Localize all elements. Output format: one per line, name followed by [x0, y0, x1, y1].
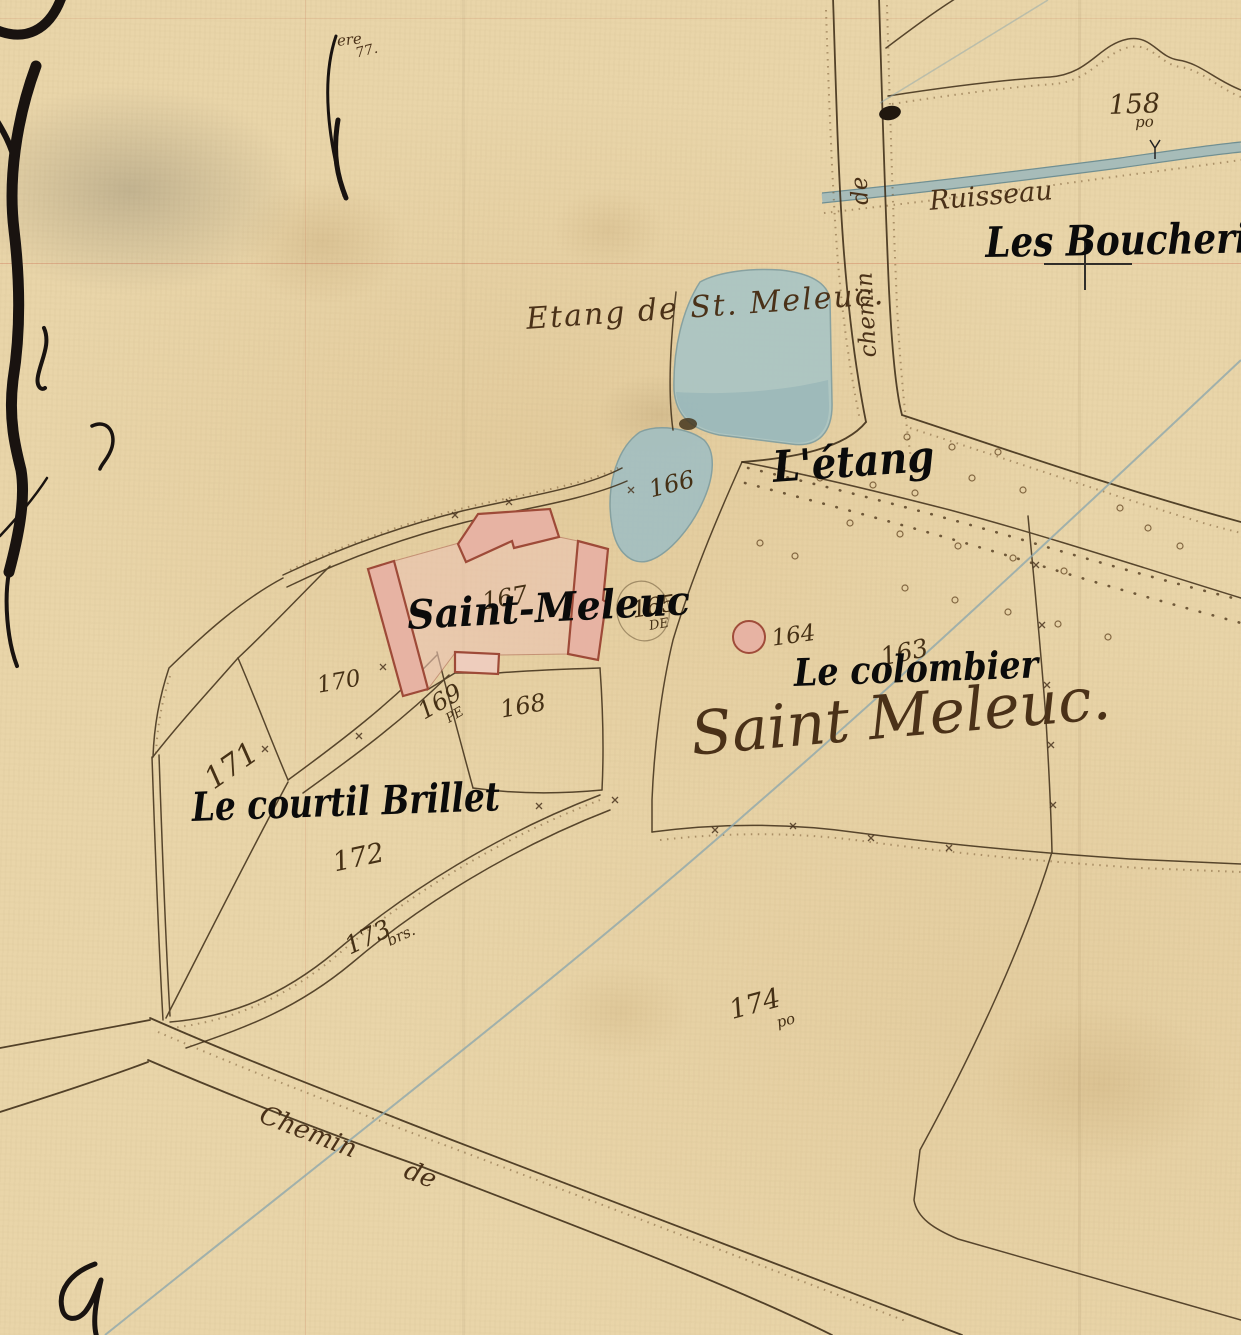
road-bottom-lower-edge	[148, 1060, 832, 1335]
parcel-number-158: 158po	[1108, 88, 1161, 121]
water-features	[610, 142, 1241, 562]
building-small	[455, 652, 499, 674]
road-top-right-edge	[879, 0, 902, 415]
annotation-les-boucheries: Les Boucheries	[985, 213, 1241, 267]
road-bottom-upper-edge	[150, 1018, 962, 1335]
colombier-circle	[733, 621, 765, 653]
pond-dark-spot	[679, 418, 697, 430]
dotted-path	[745, 468, 1241, 623]
annotation-le-colombier: Le colombier	[793, 641, 1039, 695]
cadastral-map: Etang de St. Meleuc. Ruisseau Saint Mele…	[0, 0, 1241, 1335]
